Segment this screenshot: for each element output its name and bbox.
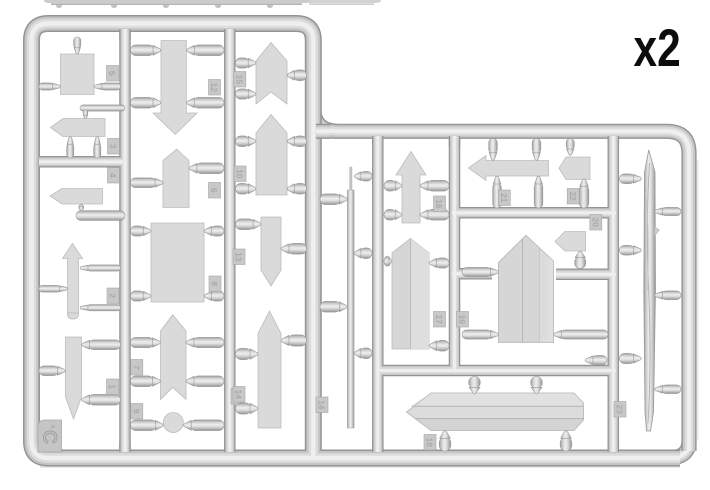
svg-text:20: 20 <box>590 217 600 227</box>
svg-text:15: 15 <box>235 74 245 84</box>
svg-text:16: 16 <box>434 199 444 209</box>
svg-text:13: 13 <box>234 252 244 262</box>
svg-text:2: 2 <box>108 293 118 298</box>
svg-text:17: 17 <box>434 314 444 324</box>
svg-text:8: 8 <box>210 281 220 286</box>
svg-text:23: 23 <box>615 404 625 414</box>
svg-text:18: 18 <box>425 437 435 447</box>
svg-text:12: 12 <box>209 82 219 92</box>
svg-text:5: 5 <box>107 71 117 76</box>
svg-text:9: 9 <box>131 409 141 414</box>
svg-text:6: 6 <box>209 188 219 193</box>
svg-text:19: 19 <box>457 314 467 324</box>
svg-text:14: 14 <box>317 400 327 410</box>
svg-text:4: 4 <box>108 173 118 178</box>
svg-text:22: 22 <box>568 191 578 201</box>
svg-text:1: 1 <box>107 384 117 389</box>
svg-text:21: 21 <box>499 193 509 203</box>
svg-text:7: 7 <box>131 365 141 370</box>
svg-text:14: 14 <box>234 389 244 399</box>
svg-text:3: 3 <box>108 144 118 149</box>
svg-text:x2: x2 <box>634 20 681 79</box>
svg-text:10: 10 <box>235 169 245 179</box>
svg-text:C: C <box>39 430 60 444</box>
